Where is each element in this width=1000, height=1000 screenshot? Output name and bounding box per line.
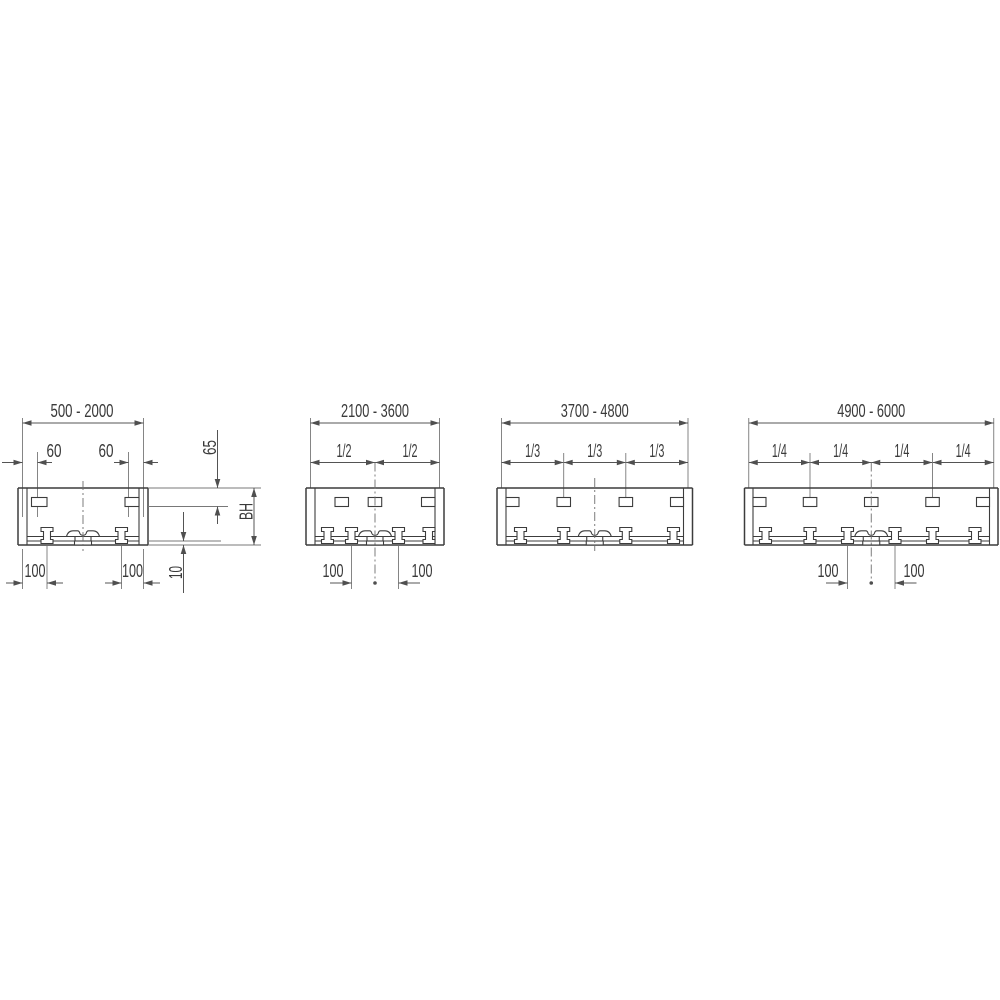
- suspension-clip: [803, 498, 817, 507]
- rail-bracket: [346, 528, 358, 544]
- rail-bracket: [558, 528, 570, 544]
- rail-bracket: [116, 528, 128, 544]
- dim-label-60-left: 60: [47, 441, 62, 461]
- suspension-clip: [335, 498, 349, 507]
- profile-body: [745, 463, 999, 584]
- dim-label-100-right: 100: [122, 561, 143, 581]
- fraction-dimensions: 1/2 1/2: [311, 441, 440, 465]
- profile-height-dimension: BH: [237, 488, 257, 545]
- profile-length-configuration-drawing: 500 - 2000 60 60: [0, 0, 1000, 1000]
- suspension-clip: [557, 498, 571, 507]
- rail-bracket: [668, 528, 680, 544]
- range-label: 3700 - 4800: [561, 401, 629, 421]
- suspension-clip: [619, 498, 633, 507]
- rail-bracket: [515, 528, 527, 544]
- range-label: 500 - 2000: [51, 401, 114, 421]
- suspension-clip: [422, 498, 436, 507]
- dim-label-100-left: 100: [25, 561, 46, 581]
- rail-bracket: [393, 528, 405, 544]
- rail-bracket: [41, 528, 53, 544]
- dim-label-quarter-4: 1/4: [956, 441, 971, 461]
- dim-label-100-left: 100: [323, 561, 344, 581]
- dim-label-65: 65: [200, 440, 220, 455]
- rail-offset-dimension: 10: [166, 512, 186, 593]
- dim-label-100-right: 100: [412, 561, 433, 581]
- technical-drawing-page: 500 - 2000 60 60: [0, 0, 1000, 1000]
- rail-bracket: [804, 528, 816, 544]
- fraction-dimensions: 1/3 1/3 1/3: [502, 441, 689, 498]
- dim-label-60-right: 60: [99, 441, 114, 461]
- dim-label-quarter-2: 1/4: [833, 441, 848, 461]
- rail-bracket: [620, 528, 632, 544]
- suspension-clip: [753, 498, 766, 507]
- rail-bracket: [423, 528, 435, 544]
- dim-label-half-left: 1/2: [337, 441, 352, 461]
- diagram-500-2000: 500 - 2000 60 60: [2, 401, 261, 593]
- suspension-clip: [125, 498, 139, 507]
- dim-label-quarter-3: 1/4: [894, 441, 909, 461]
- diagram-3700-4800: 3700 - 4800 1/3 1/3 1/3: [497, 401, 693, 551]
- profile-body: [497, 478, 693, 551]
- suspension-clip: [671, 498, 684, 507]
- dim-label-half-right: 1/2: [403, 441, 418, 461]
- dim-label-third-1: 1/3: [525, 441, 540, 461]
- bracket-offset-dimensions: 100 100: [6, 546, 160, 589]
- rail-bracket: [760, 528, 772, 544]
- dim-label-100-left: 100: [818, 561, 839, 581]
- diagram-4900-6000: 4900 - 6000 1/4 1/4 1/4 1/4: [745, 401, 999, 589]
- dim-label-100-right: 100: [904, 561, 925, 581]
- range-label: 4900 - 6000: [837, 401, 905, 421]
- dim-label-third-3: 1/3: [649, 441, 664, 461]
- dim-label-quarter-1: 1/4: [772, 441, 787, 461]
- rail-bracket: [927, 528, 939, 544]
- dim-label-10: 10: [166, 566, 186, 579]
- rail-bracket: [969, 528, 981, 544]
- rail-bracket: [842, 528, 854, 544]
- suspension-clip: [506, 498, 519, 507]
- dim-label-third-2: 1/3: [587, 441, 602, 461]
- suspension-clip: [977, 498, 990, 507]
- diagram-2100-3600: 2100 - 3600 1/2 1/2: [306, 401, 444, 589]
- dim-label-bh: BH: [237, 503, 257, 520]
- clip-depth-dimension: 65: [200, 430, 220, 524]
- bracket-offset-dimensions: 100 100: [323, 546, 433, 589]
- rail-bracket: [889, 528, 901, 544]
- suspension-clip: [926, 498, 940, 507]
- rail-bracket: [322, 528, 334, 544]
- range-label: 2100 - 3600: [341, 401, 409, 421]
- suspension-clip: [32, 498, 48, 507]
